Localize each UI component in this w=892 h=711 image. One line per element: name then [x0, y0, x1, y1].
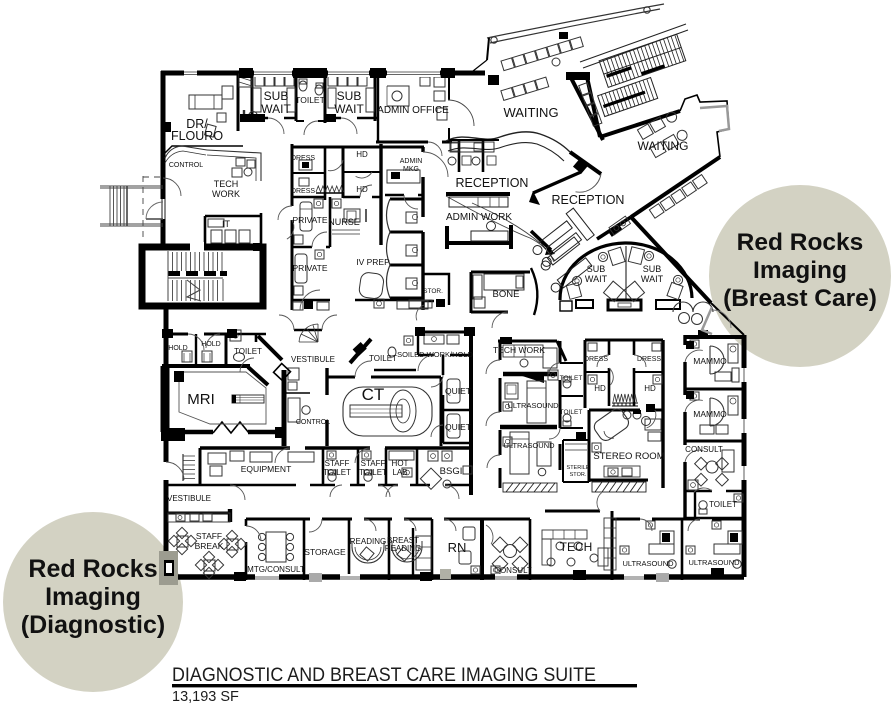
svg-text:TECH: TECH — [560, 540, 593, 554]
svg-text:SUB: SUB — [587, 264, 606, 274]
svg-text:STERILE: STERILE — [567, 465, 590, 471]
svg-text:QUIET: QUIET — [445, 386, 471, 396]
svg-text:CONSULT: CONSULT — [685, 445, 723, 454]
svg-text:LAB: LAB — [392, 468, 407, 477]
svg-text:NURSE: NURSE — [328, 217, 360, 227]
svg-text:SOILED WORK/HOLD: SOILED WORK/HOLD — [397, 350, 473, 359]
svg-text:DRESS: DRESS — [584, 356, 608, 363]
svg-text:DRESS: DRESS — [291, 188, 315, 195]
svg-text:PRIVATE: PRIVATE — [292, 215, 327, 225]
svg-text:VESTIBULE: VESTIBULE — [167, 494, 211, 503]
svg-text:TOILET: TOILET — [234, 347, 262, 356]
svg-text:SUB: SUB — [264, 89, 289, 103]
svg-text:BSGI: BSGI — [440, 466, 463, 477]
svg-text:(Diagnostic): (Diagnostic) — [21, 611, 165, 639]
svg-text:ULTRASOUND: ULTRASOUND — [622, 559, 674, 568]
svg-text:WAIT: WAIT — [641, 274, 664, 284]
svg-text:ADMIN OFFICE: ADMIN OFFICE — [377, 105, 449, 116]
svg-text:EQUIPMENT: EQUIPMENT — [241, 464, 292, 474]
svg-text:WAITING: WAITING — [503, 105, 558, 120]
svg-text:(Breast Care): (Breast Care) — [723, 285, 877, 312]
svg-text:13,193 SF: 13,193 SF — [172, 689, 239, 705]
svg-text:ADMIN WORK: ADMIN WORK — [446, 212, 512, 223]
svg-text:WAIT: WAIT — [334, 102, 364, 116]
svg-text:Imaging: Imaging — [45, 583, 141, 611]
svg-text:WAIT: WAIT — [585, 274, 608, 284]
svg-text:RECEPTION: RECEPTION — [456, 176, 529, 190]
svg-text:STAFF: STAFF — [325, 459, 350, 468]
svg-text:TOILET: TOILET — [359, 468, 387, 477]
svg-text:FLOURO: FLOURO — [171, 129, 223, 143]
svg-text:TECH WORK: TECH WORK — [493, 345, 545, 355]
svg-text:TOILET: TOILET — [369, 354, 397, 363]
svg-text:RN: RN — [448, 540, 467, 555]
svg-text:QUIET: QUIET — [445, 422, 471, 432]
svg-text:Red Rocks: Red Rocks — [737, 229, 864, 256]
svg-text:BREAK: BREAK — [195, 541, 224, 551]
svg-text:TOILET: TOILET — [295, 95, 325, 105]
svg-text:Imaging: Imaging — [753, 257, 847, 284]
svg-text:TOILET: TOILET — [323, 468, 351, 477]
svg-text:HD: HD — [356, 185, 368, 194]
svg-text:TOILET: TOILET — [709, 500, 737, 509]
svg-text:HD: HD — [356, 150, 368, 159]
svg-text:ULTRASOUND: ULTRASOUND — [507, 401, 559, 410]
svg-text:DIAGNOSTIC AND BREAST CARE IMA: DIAGNOSTIC AND BREAST CARE IMAGING SUITE — [172, 665, 596, 686]
svg-text:WORK: WORK — [212, 189, 240, 199]
svg-text:MAMMO: MAMMO — [693, 356, 727, 366]
svg-text:STAFF: STAFF — [361, 459, 386, 468]
svg-text:SUB: SUB — [643, 264, 662, 274]
svg-text:RECEPTION: RECEPTION — [552, 193, 625, 207]
svg-text:WAITING: WAITING — [638, 139, 689, 153]
svg-text:VESTIBULE: VESTIBULE — [291, 355, 335, 364]
svg-text:STEREO ROOM: STEREO ROOM — [593, 451, 664, 462]
svg-text:DRESS: DRESS — [291, 155, 315, 162]
svg-text:TOILET: TOILET — [560, 375, 583, 382]
svg-text:TECH: TECH — [214, 179, 239, 189]
svg-text:HD: HD — [594, 384, 606, 393]
svg-text:IV PREP: IV PREP — [356, 257, 390, 267]
svg-text:READING: READING — [385, 544, 421, 553]
svg-text:HOT: HOT — [392, 459, 409, 468]
svg-text:CONTROL: CONTROL — [296, 419, 330, 426]
svg-text:HOLD: HOLD — [168, 345, 187, 352]
svg-text:PRIVATE: PRIVATE — [292, 263, 327, 273]
svg-text:MAMMO: MAMMO — [693, 409, 727, 419]
svg-text:CT: CT — [362, 385, 385, 404]
svg-text:ULTRASOUND: ULTRASOUND — [688, 558, 740, 567]
svg-text:MRI: MRI — [187, 391, 215, 408]
svg-text:Red Rocks: Red Rocks — [28, 555, 157, 583]
svg-text:CONTROL: CONTROL — [169, 162, 203, 169]
svg-text:WAIT: WAIT — [261, 102, 291, 116]
svg-text:READING: READING — [350, 537, 386, 546]
svg-text:HOLD: HOLD — [201, 341, 220, 348]
svg-text:STOR.: STOR. — [423, 288, 443, 295]
svg-text:STORAGE: STORAGE — [304, 547, 346, 557]
svg-text:BONE: BONE — [493, 289, 520, 300]
svg-text:SUB: SUB — [337, 89, 362, 103]
svg-text:STOR.: STOR. — [570, 472, 587, 478]
svg-text:IT: IT — [222, 219, 231, 229]
svg-text:ULTRASOUND: ULTRASOUND — [503, 441, 555, 450]
svg-text:MKG: MKG — [403, 166, 419, 173]
svg-text:CONSULT: CONSULT — [494, 566, 532, 575]
svg-text:STAFF: STAFF — [196, 531, 222, 541]
svg-text:DRESS: DRESS — [637, 356, 661, 363]
svg-text:TOILET: TOILET — [560, 409, 583, 416]
svg-text:ADMIN: ADMIN — [400, 158, 423, 165]
svg-text:MTG/CONSULT: MTG/CONSULT — [247, 565, 305, 574]
svg-text:HD: HD — [644, 384, 656, 393]
